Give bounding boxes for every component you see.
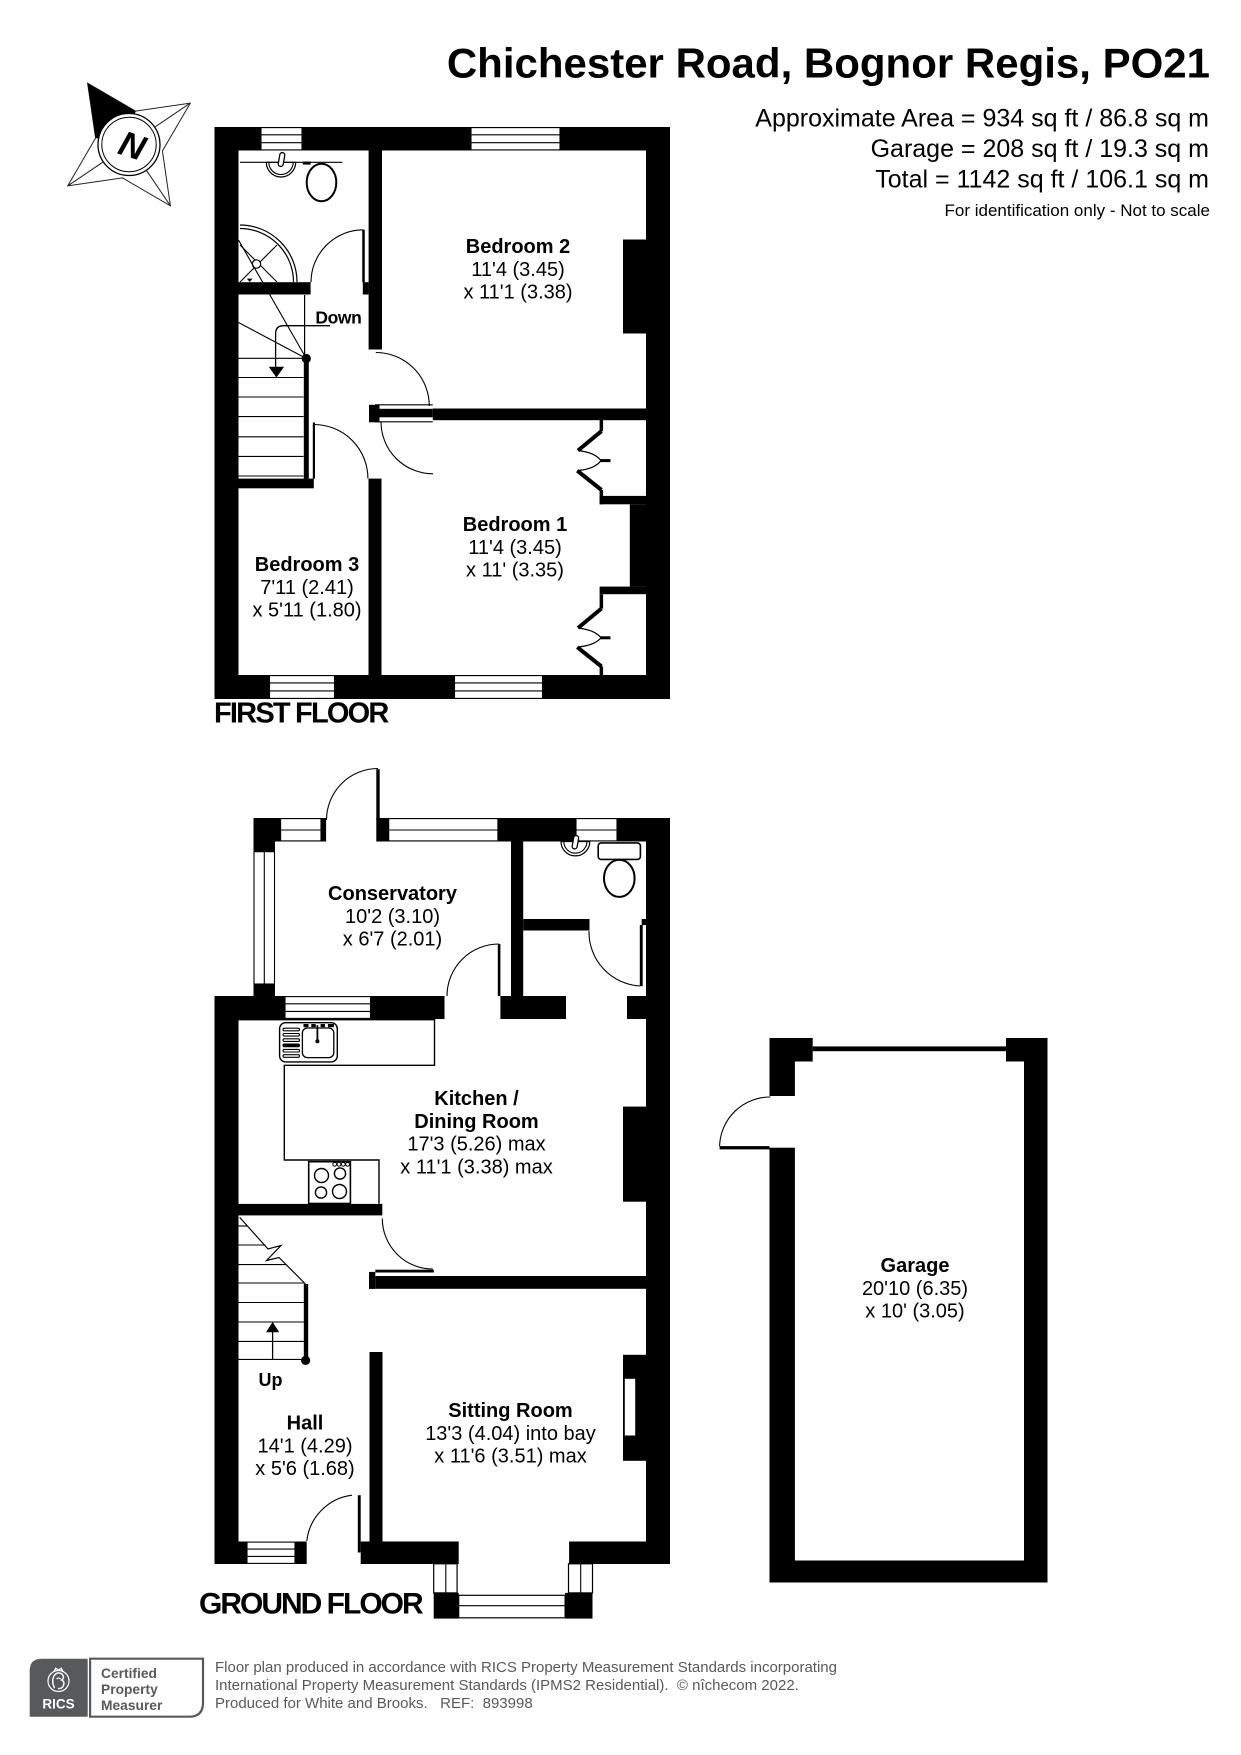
- svg-text:13'3 (4.04) into bay: 13'3 (4.04) into bay: [425, 1423, 596, 1445]
- svg-text:Floor plan produced in accorda: Floor plan produced in accordance with R…: [215, 1659, 837, 1676]
- svg-text:x 6'7 (2.01): x 6'7 (2.01): [343, 929, 442, 951]
- svg-text:17'3 (5.26) max: 17'3 (5.26) max: [407, 1134, 545, 1156]
- svg-text:Garage: Garage: [881, 1255, 950, 1277]
- svg-text:Down: Down: [315, 307, 361, 327]
- svg-text:14'1 (4.29): 14'1 (4.29): [258, 1435, 353, 1457]
- svg-text:For identification only - Not: For identification only - Not to scale: [944, 201, 1210, 220]
- svg-text:Chichester Road, Bognor Regis,: Chichester Road, Bognor Regis, PO21: [447, 40, 1210, 87]
- svg-text:x 11'1 (3.38) max: x 11'1 (3.38) max: [400, 1156, 552, 1178]
- svg-text:Bedroom 3: Bedroom 3: [255, 554, 359, 576]
- svg-text:20'10 (6.35): 20'10 (6.35): [862, 1278, 968, 1300]
- svg-text:x 11' (3.35): x 11' (3.35): [466, 560, 564, 582]
- svg-text:Sitting Room: Sitting Room: [448, 1400, 572, 1422]
- svg-text:Bedroom 2: Bedroom 2: [466, 236, 570, 258]
- svg-text:Hall: Hall: [287, 1413, 324, 1435]
- svg-text:Total = 1142 sq ft / 106.1 sq: Total = 1142 sq ft / 106.1 sq m: [875, 166, 1209, 194]
- svg-text:RICS: RICS: [42, 1697, 74, 1712]
- svg-text:x 5'11 (1.80): x 5'11 (1.80): [252, 600, 361, 622]
- svg-text:Up: Up: [259, 1370, 283, 1390]
- svg-text:Bedroom 1: Bedroom 1: [463, 514, 567, 536]
- svg-text:Certified: Certified: [101, 1666, 157, 1681]
- svg-text:Property: Property: [101, 1682, 158, 1697]
- svg-text:FIRST FLOOR: FIRST FLOOR: [214, 698, 389, 730]
- svg-text:International Property Measure: International Property Measurement Stand…: [215, 1677, 799, 1694]
- svg-text:Measurer: Measurer: [101, 1698, 163, 1713]
- svg-text:Approximate Area = 934 sq ft /: Approximate Area = 934 sq ft / 86.8 sq m: [755, 105, 1209, 133]
- svg-text:Conservatory: Conservatory: [328, 883, 458, 905]
- svg-text:x 5'6 (1.68): x 5'6 (1.68): [255, 1458, 354, 1480]
- svg-text:7'11 (2.41): 7'11 (2.41): [260, 577, 354, 599]
- svg-text:Garage = 208 sq ft / 19.3 sq m: Garage = 208 sq ft / 19.3 sq m: [871, 135, 1209, 163]
- svg-text:x 11'1 (3.38): x 11'1 (3.38): [463, 282, 572, 304]
- svg-text:Dining Room: Dining Room: [414, 1111, 538, 1133]
- svg-text:x 11'6 (3.51) max: x 11'6 (3.51) max: [434, 1446, 586, 1468]
- svg-text:GROUND FLOOR: GROUND FLOOR: [199, 1588, 424, 1621]
- svg-text:10'2 (3.10): 10'2 (3.10): [345, 906, 440, 928]
- svg-text:Produced for White and Brooks.: Produced for White and Brooks. REF: 8939…: [215, 1695, 533, 1712]
- svg-text:11'4 (3.45): 11'4 (3.45): [468, 537, 562, 559]
- svg-text:x 10' (3.05): x 10' (3.05): [865, 1301, 964, 1323]
- svg-text:11'4 (3.45): 11'4 (3.45): [471, 259, 565, 281]
- svg-text:Kitchen /: Kitchen /: [434, 1088, 519, 1110]
